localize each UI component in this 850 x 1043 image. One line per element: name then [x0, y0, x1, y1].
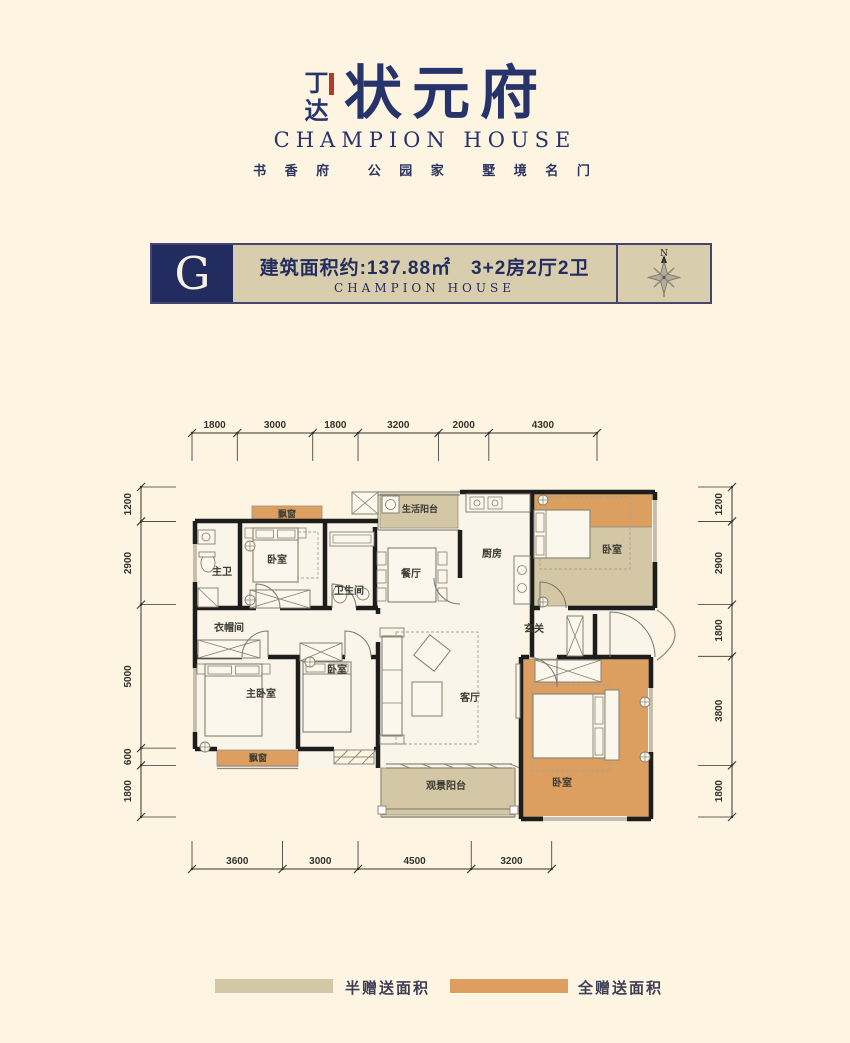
dimension-label: 3600 — [226, 856, 249, 867]
dimension-label: 2900 — [123, 551, 134, 574]
project-title-en: CHAMPION HOUSE — [0, 128, 850, 152]
unit-subtitle: CHAMPION HOUSE — [334, 281, 515, 295]
room-label: 餐厅 — [400, 567, 421, 580]
dimension-label: 4500 — [403, 856, 426, 867]
room-label: 卧室 — [552, 776, 572, 789]
room-label: 厨房 — [482, 547, 502, 560]
dimension-label: 2000 — [453, 420, 476, 431]
dimension-label: 3000 — [309, 856, 332, 867]
legend-label-half-gift: 半赠送面积 — [345, 977, 430, 998]
legend-label-full-gift: 全赠送面积 — [578, 977, 663, 998]
dimension-label: 3200 — [387, 420, 410, 431]
room-label: 客厅 — [459, 691, 480, 704]
brand-name-vertical: 丁达 — [302, 70, 326, 126]
room-label: 玄关 — [524, 622, 544, 635]
dimension-label: 1800 — [714, 780, 725, 803]
room-label: 卧室 — [267, 553, 287, 566]
unit-letter: G — [152, 245, 233, 302]
dimension-label: 1800 — [123, 780, 134, 803]
legend: 半赠送面积 全赠送面积 — [0, 977, 850, 1007]
dimension-label: 600 — [123, 748, 134, 765]
room-label: 卧室 — [327, 663, 347, 676]
dimension-label: 3200 — [500, 856, 523, 867]
dimension-label: 5000 — [123, 665, 134, 688]
room-label: 飘窗 — [249, 752, 267, 763]
unit-area-text: 建筑面积约:137.88㎡ 3+2房2厅2卫 — [260, 253, 590, 280]
room-label: 卫生间 — [334, 584, 364, 597]
room-label: 主卫 — [212, 565, 232, 578]
dimension-label: 3000 — [264, 420, 287, 431]
dimension-label: 1800 — [324, 420, 347, 431]
project-tagline: 书 香 府 公 园 家 墅 境 名 门 — [0, 160, 850, 179]
room-label: 飘窗 — [278, 508, 296, 519]
room-label: 衣帽间 — [214, 621, 244, 634]
dimension-label: 4300 — [532, 420, 555, 431]
legend-swatch-full-gift — [450, 979, 568, 993]
room-label: 主卧室 — [246, 687, 276, 700]
project-title: 状元府 — [344, 62, 548, 126]
dimension-label: 2900 — [714, 551, 725, 574]
legend-swatch-half-gift — [215, 979, 333, 993]
dimension-label: 1800 — [204, 420, 227, 431]
seal-mark — [329, 73, 334, 95]
dimension-label: 1200 — [714, 493, 725, 516]
room-label: 观景阳台 — [426, 779, 466, 792]
dimension-label: 1800 — [714, 619, 725, 642]
unit-banner: G 建筑面积约:137.88㎡ 3+2房2厅2卫 CHAMPION HOUSE … — [150, 243, 712, 304]
room-label: 卧室 — [602, 543, 622, 556]
compass-box: N — [616, 245, 710, 302]
room-label: 生活阳台 — [402, 503, 438, 514]
poster-page: 主卫卧室卫生间餐厅生活阳台厨房卧室玄关衣帽间主卧室卧室客厅飘窗飘窗观景阳台卧室1… — [0, 0, 850, 1043]
unit-info: 建筑面积约:137.88㎡ 3+2房2厅2卫 CHAMPION HOUSE — [233, 245, 616, 302]
compass-icon: N — [642, 247, 686, 301]
dimension-label: 1200 — [123, 493, 134, 516]
brand-logo: 丁达 状元府 CHAMPION HOUSE 书 香 府 公 园 家 墅 境 名 … — [0, 62, 850, 179]
dimension-label: 3800 — [714, 699, 725, 722]
